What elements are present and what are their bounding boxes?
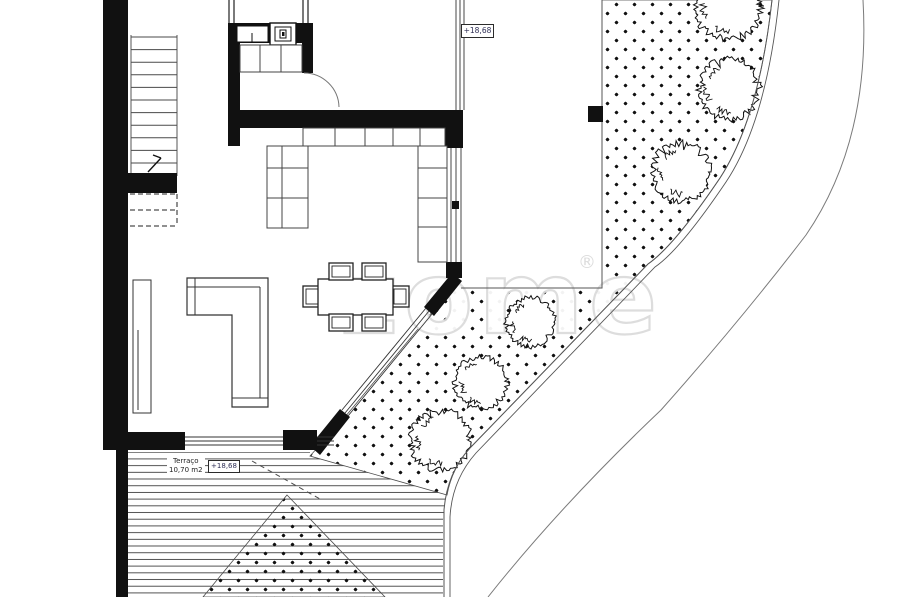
bathroom-left-wall <box>228 43 240 146</box>
window-mullion <box>452 201 459 209</box>
watermark-registered-icon: ® <box>578 252 596 273</box>
east-pier-a <box>445 110 463 148</box>
staircase <box>131 35 177 176</box>
east-window-upper <box>456 0 464 110</box>
west-wall <box>103 0 128 450</box>
sideboard <box>133 280 151 413</box>
dining-chair <box>362 263 386 280</box>
terrace-area: 10,70 m2 <box>169 466 203 475</box>
level-marker-terrace: +18,68 <box>208 460 240 473</box>
wall-cut-lines <box>229 0 308 23</box>
kitchen-wall <box>230 110 463 128</box>
shower-cells <box>240 45 302 72</box>
west-terrace-wall <box>116 450 128 597</box>
south-wall-left <box>103 432 185 450</box>
bathroom <box>237 23 339 107</box>
stair-landing-wall <box>128 173 177 193</box>
counter-north <box>303 128 445 146</box>
terrace-name: Terraço <box>169 457 203 466</box>
level-marker-upper: +18,68 <box>461 24 494 38</box>
dining-chair <box>362 314 386 331</box>
floor-plan-canvas: zome ® <box>0 0 900 597</box>
counter-east <box>418 146 447 262</box>
dining-table <box>318 279 393 315</box>
door-swing-arc <box>304 73 339 107</box>
dining-chair <box>329 314 353 331</box>
bathroom-right-wall <box>302 43 313 73</box>
garden-wall-stub <box>588 106 603 122</box>
dining-chair <box>329 263 353 280</box>
floor-plan-drawing: zome ® <box>0 0 900 597</box>
counter-peninsula <box>267 146 308 228</box>
dining-chair <box>391 286 409 307</box>
terrace-label: Terraço 10,70 m2 <box>167 457 205 474</box>
sofa <box>187 278 268 407</box>
